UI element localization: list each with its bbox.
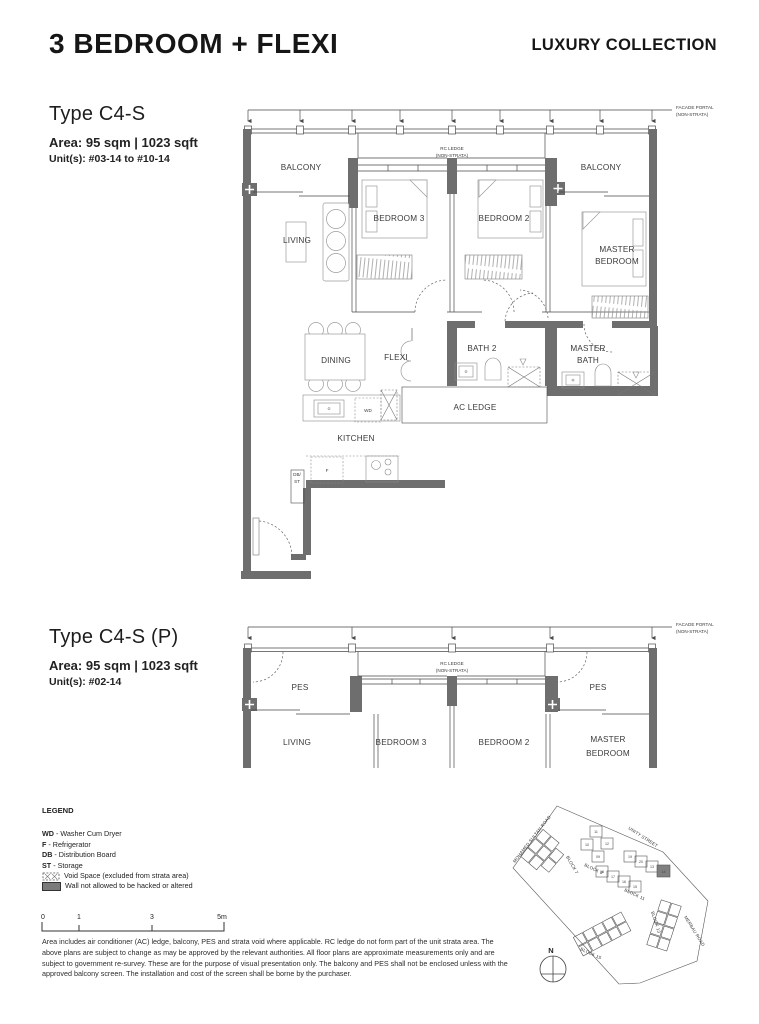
site-boundary: [513, 806, 708, 984]
site-block13-cluster: [647, 900, 681, 951]
legend-item-db: DB - Distribution Board: [42, 850, 193, 860]
plan1-facade-portal-line: [248, 110, 672, 121]
void-space-icon: [42, 872, 60, 881]
room-label-dining: DINING: [321, 356, 351, 365]
plan2-drawing: FACADE PORTAL (NON-STRATA): [242, 622, 714, 772]
plan2-facade-portal-line: [248, 627, 672, 638]
legend-item-void-space: Void Space (excluded from strata area): [42, 871, 193, 881]
highlighted-unit-number: 14: [662, 870, 666, 874]
scale-tick-0: 0: [41, 914, 45, 921]
unit-number: 20: [639, 860, 643, 864]
room-label-living: LIVING: [283, 236, 311, 245]
legend-item-f: F - Refrigerator: [42, 840, 193, 850]
plan1-facade-portal-label-line1: FACADE PORTAL: [676, 105, 714, 110]
plan2-rc-ledge-line1: RC LEDGE: [440, 661, 464, 666]
room-label-flexi: FLEXI: [384, 353, 408, 362]
disclaimer-text: Area includes air conditioner (AC) ledge…: [42, 937, 512, 980]
label-fridge: F: [326, 468, 329, 473]
room-label-bedroom2: BEDROOM 2: [479, 214, 530, 223]
room-label-bedroom2-p: BEDROOM 2: [479, 738, 530, 747]
scale-tick-5m: 5m: [217, 914, 227, 921]
legend: LEGEND WD - Washer Cum Dryer F - Refrige…: [42, 806, 193, 892]
plan2-column-markers: [242, 698, 560, 711]
unit-number: 09: [596, 855, 600, 859]
unit-number: 17: [611, 875, 615, 879]
label-db: DB/: [293, 472, 301, 477]
room-label-balcony-right: BALCONY: [581, 163, 622, 172]
unit-number: 15: [633, 885, 637, 889]
unit-number: 13: [650, 865, 654, 869]
room-label-bedroom3: BEDROOM 3: [374, 214, 425, 223]
site-block13-label: BLOCK 13: [650, 911, 662, 934]
room-label-master-bedroom-p-line2: BEDROOM: [586, 749, 630, 758]
unit-number: 19: [628, 855, 632, 859]
room-label-bath2: BATH 2: [467, 344, 497, 353]
room-label-ac-ledge: AC LEDGE: [453, 403, 496, 412]
unit-number: 12: [605, 842, 609, 846]
label-st: ST: [294, 479, 300, 484]
room-label-master-bedroom-line1: MASTER: [599, 245, 634, 254]
plan1-walls: [241, 129, 658, 579]
room-label-balcony-left: BALCONY: [281, 163, 322, 172]
plan2-facade-portal-label-line2: (NON-STRATA): [676, 629, 709, 634]
unit-number: 11: [594, 830, 598, 834]
plan2-door-arcs: [253, 652, 587, 682]
room-label-pes-left: PES: [292, 683, 309, 692]
legend-title: LEGEND: [42, 806, 193, 816]
plan1-drawing: FACADE PORTAL (NON-STRATA): [241, 105, 714, 579]
road-label-mohamed-sultan: MOHAMED SULTAN ROAD: [512, 814, 552, 863]
road-label-unity-street: UNITY STREET: [627, 826, 658, 849]
plan2-facade-portal-label-line1: FACADE PORTAL: [676, 622, 714, 627]
plan2-rc-ledge-line2: (NON-STRATA): [436, 668, 469, 673]
scale-bar: 0 1 3 5m: [41, 914, 227, 931]
floorplan-page: 3 BEDROOM + FLEXI LUXURY COLLECTION Type…: [0, 0, 759, 1024]
site-block11-label: BLOCK 11: [624, 887, 647, 901]
compass-north-label: N: [548, 946, 553, 955]
site-block11-cluster: 19 20 13 14 18 17 16 15: [596, 851, 670, 892]
room-label-pes-right: PES: [590, 683, 607, 692]
site-block7-label: BLOCK 7: [565, 855, 579, 875]
site-block9-label: BLOCK 9: [584, 862, 605, 875]
legend-item-wall: Wall not allowed to be hacked or altered: [42, 881, 193, 891]
room-label-living-p: LIVING: [283, 738, 311, 747]
compass: N: [540, 946, 566, 982]
site-block9-cluster: 11 12 10 09: [581, 826, 613, 862]
unit-number: 10: [585, 843, 589, 847]
legend-item-wd: WD - Washer Cum Dryer: [42, 829, 193, 839]
scale-tick-3: 3: [150, 914, 154, 921]
plan1-facade-portal-label-line2: (NON-STRATA): [676, 112, 709, 117]
unit-number: 16: [622, 880, 626, 884]
room-label-master-bath-line2: BATH: [577, 356, 599, 365]
site-map: 11 12 10 09 19 20 13 14 18 17: [512, 806, 708, 984]
room-label-bedroom3-p: BEDROOM 3: [376, 738, 427, 747]
legend-item-st: ST - Storage: [42, 861, 193, 871]
room-label-kitchen: KITCHEN: [337, 434, 374, 443]
wall-icon: [42, 882, 61, 891]
plan1-rc-ledge-line2: (NON-STRATA): [436, 153, 469, 158]
label-wd: WD: [364, 408, 372, 413]
room-label-master-bedroom-line2: BEDROOM: [595, 257, 639, 266]
site-block15-label: BLOCK 15: [580, 946, 603, 960]
room-label-master-bedroom-p-line1: MASTER: [590, 735, 625, 744]
room-label-master-bath-line1: MASTER: [570, 344, 605, 353]
scale-tick-1: 1: [77, 914, 81, 921]
site-block7-cluster: [521, 829, 568, 876]
plan1-rc-ledge-line1: RC LEDGE: [440, 146, 464, 151]
